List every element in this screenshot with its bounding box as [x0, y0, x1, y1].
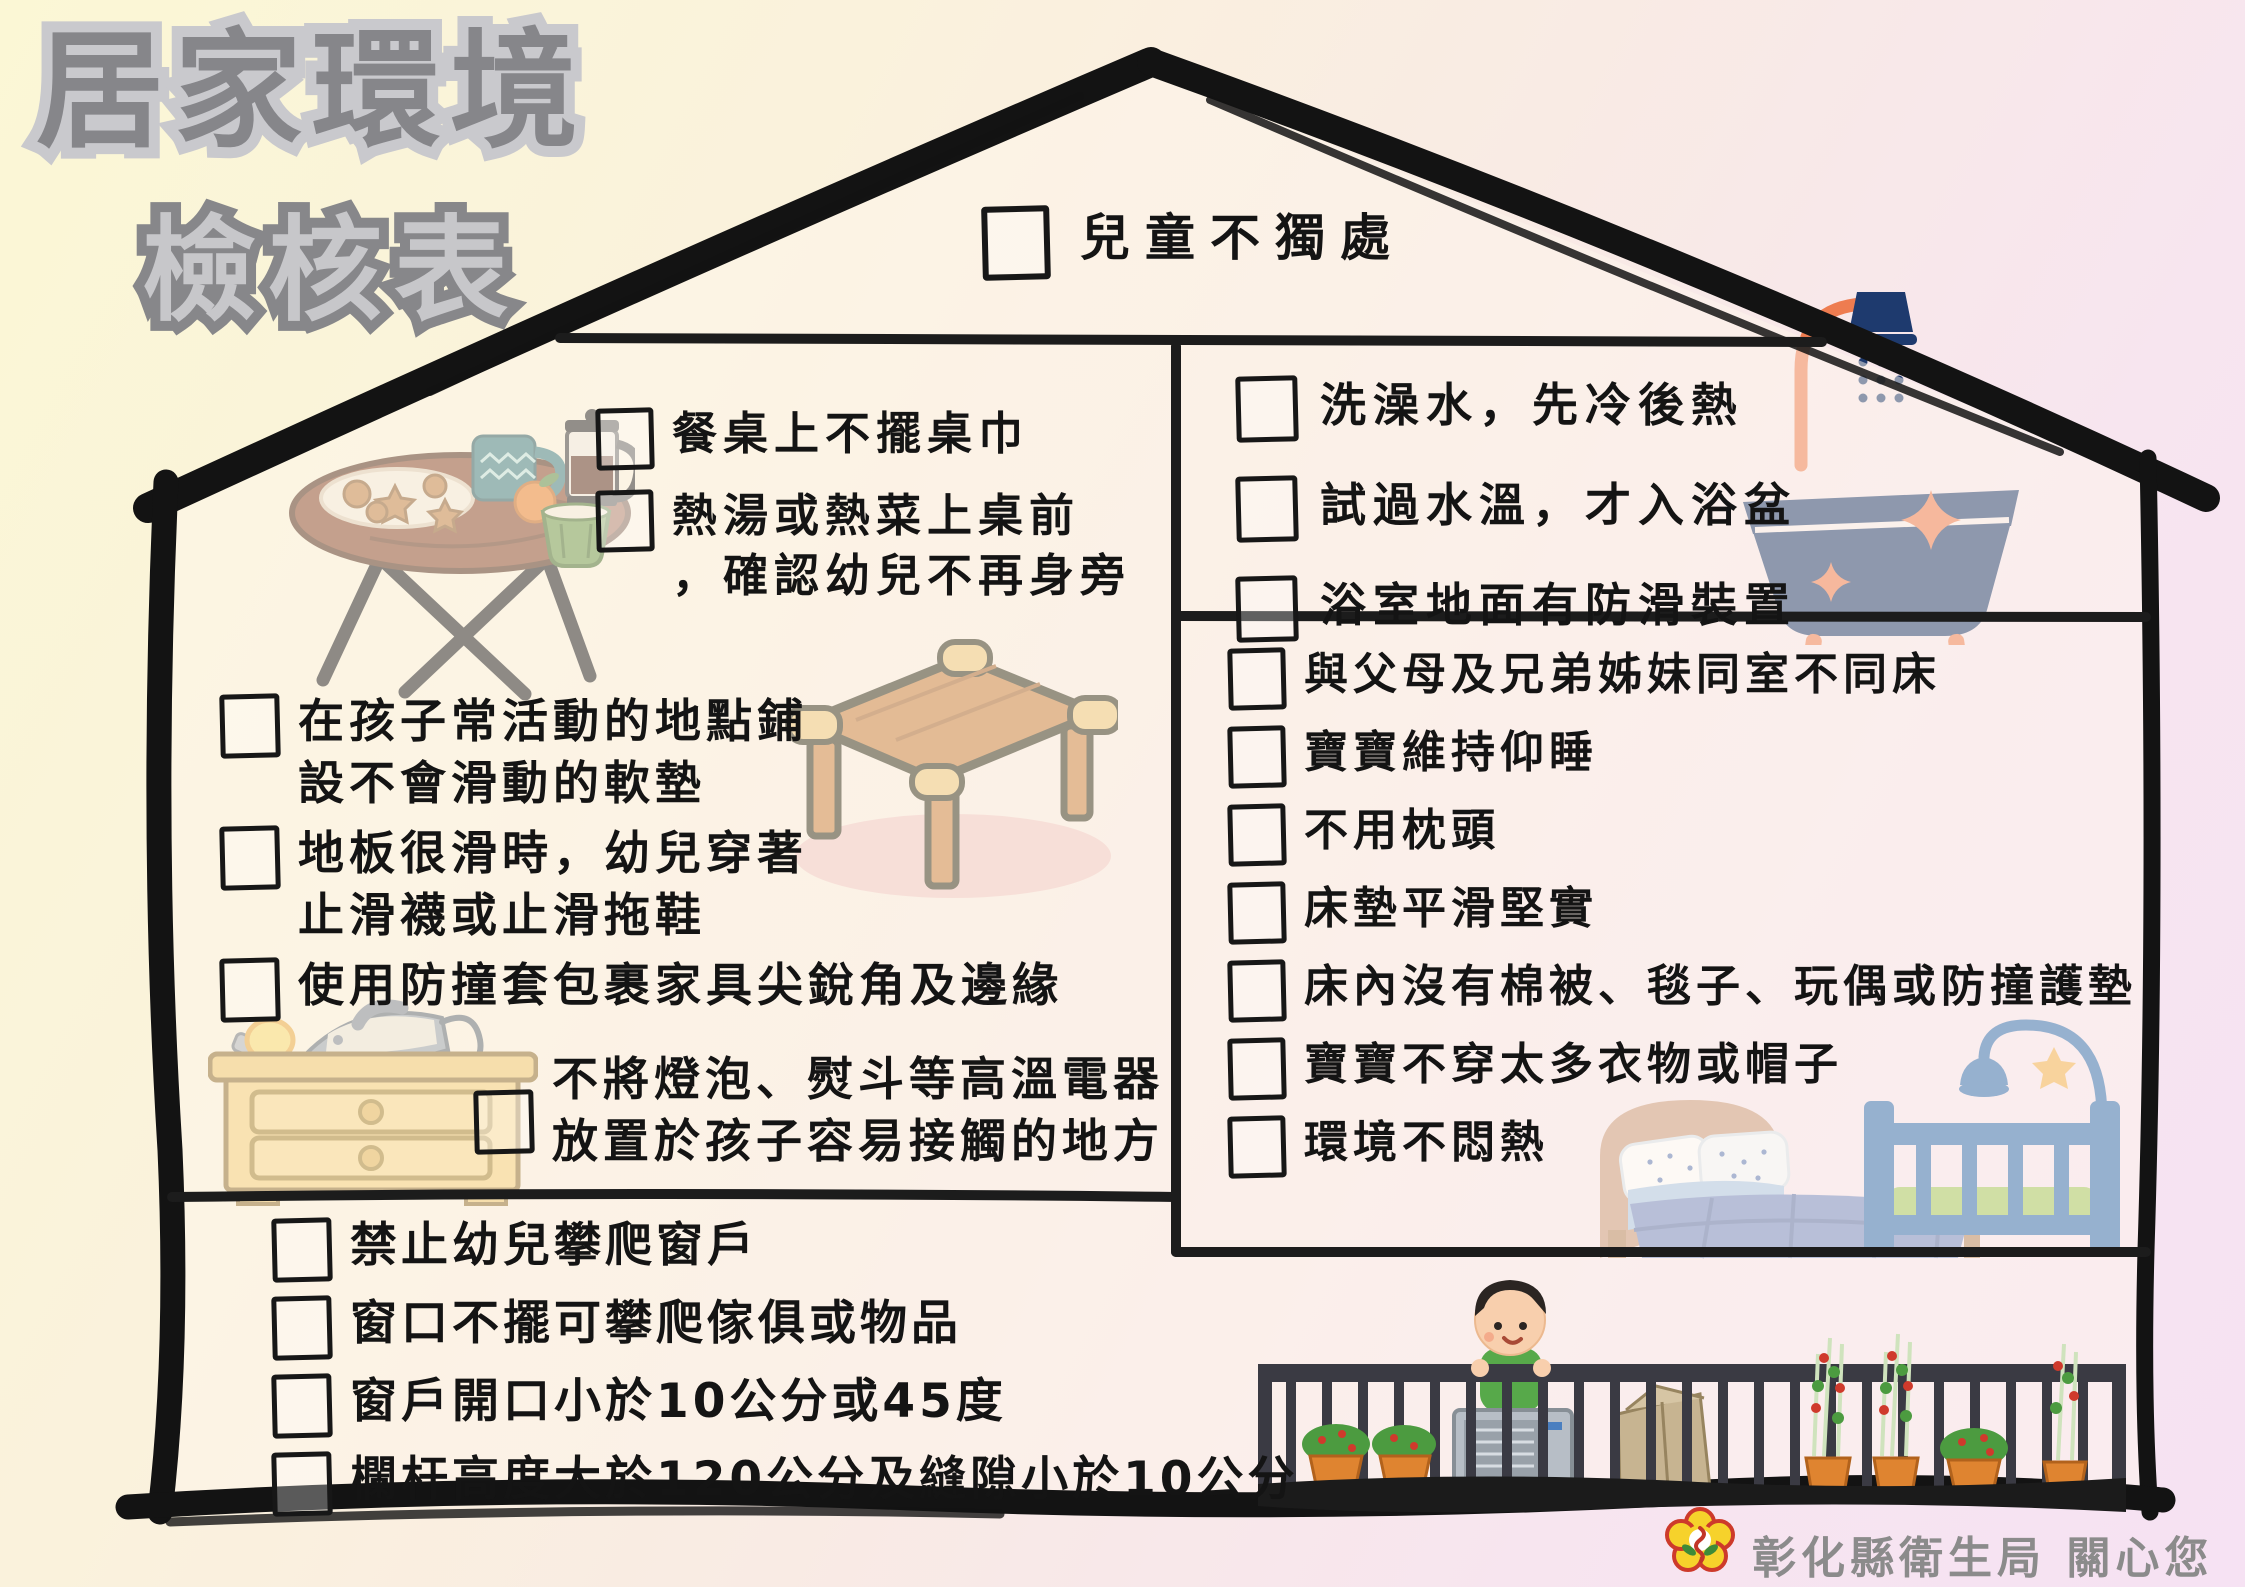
list-item: 欄杆高度大於120公分及縫隙小於10公分 [272, 1452, 1299, 1516]
checkbox-bed-7[interactable] [1227, 1115, 1286, 1178]
checkbox-balcony-3[interactable] [271, 1373, 333, 1438]
checkbox-living-1[interactable] [219, 693, 281, 758]
list-item: 試過水溫，才入浴盆 [1236, 476, 1797, 542]
checkbox-living-4[interactable] [473, 1089, 535, 1154]
item-label: 寶寶維持仰睡 [1304, 726, 1598, 780]
item-label: 洗澡水，先冷後熱 [1320, 376, 1744, 434]
item-label: 窗戶開口小於10公分或45度 [350, 1374, 1007, 1430]
checkbox-balcony-1[interactable] [271, 1217, 333, 1282]
rooftop-checklist: 兒童不獨處 [982, 206, 1405, 280]
checkbox-rooftop[interactable] [981, 205, 1051, 281]
tall-plant [1806, 1338, 1850, 1494]
health-bureau-logo [1662, 1506, 1738, 1576]
list-item: 寶寶不穿太多衣物或帽子 [1228, 1038, 2137, 1100]
bathroom-checklist: 洗澡水，先冷後熱 試過水溫，才入浴盆 浴室地面有防滑裝置 [1236, 376, 1797, 642]
list-item: 地板很滑時，幼兒穿著 止滑襪或止滑拖鞋 [220, 822, 1063, 946]
list-item: 不將燈泡、熨斗等高溫電器 放置於孩子容易接觸的地方 [474, 1048, 1164, 1172]
left-wall [159, 482, 173, 1512]
item-label: 地板很滑時，幼兒穿著 [298, 822, 808, 884]
item-label-line2: 放置於孩子容易接觸的地方 [552, 1110, 1164, 1172]
balcony-illustration [1258, 1268, 2138, 1518]
item-label: 不將燈泡、熨斗等高溫電器 [552, 1048, 1164, 1110]
item-label-line2: 設不會滑動的軟墊 [298, 752, 808, 814]
item-label: 熱湯或熱菜上桌前 [672, 486, 1131, 546]
item-label: 寶寶不穿太多衣物或帽子 [1304, 1038, 1843, 1092]
dining-checklist: 餐桌上不擺桌巾 熱湯或熱菜上桌前 ，確認幼兒不再身旁 [596, 404, 1131, 606]
item-label-line2: ，確認幼兒不再身旁 [672, 546, 1131, 606]
list-item: 浴室地面有防滑裝置 [1236, 576, 1797, 642]
checkbox-bed-3[interactable] [1227, 803, 1286, 866]
footer-credit: 彰化縣衛生局 關心您 [1752, 1522, 2213, 1586]
cardboard-boxes [1618, 1386, 1710, 1492]
checkbox-dining-1[interactable] [595, 407, 654, 470]
list-item: 熱湯或熱菜上桌前 ，確認幼兒不再身旁 [596, 486, 1131, 606]
item-label: 試過水溫，才入浴盆 [1320, 476, 1797, 534]
checkbox-living-2[interactable] [219, 825, 281, 890]
checkbox-bed-4[interactable] [1227, 881, 1286, 944]
item-label: 浴室地面有防滑裝置 [1320, 576, 1797, 634]
bedroom-checklist: 與父母及兄弟姊妹同室不同床 寶寶維持仰睡 不用枕頭 床墊平滑堅實 床內沒有棉被、… [1228, 648, 2137, 1178]
list-item: 床內沒有棉被、毯子、玩偶或防撞護墊 [1228, 960, 2137, 1022]
list-item: 餐桌上不擺桌巾 [596, 404, 1131, 470]
item-label: 環境不悶熱 [1304, 1116, 1549, 1170]
item-label: 床墊平滑堅實 [1304, 882, 1598, 936]
list-item: 環境不悶熱 [1228, 1116, 2137, 1178]
checkbox-bed-1[interactable] [1227, 647, 1286, 710]
item-label: 床內沒有棉被、毯子、玩偶或防撞護墊 [1304, 960, 2137, 1014]
partition-top [560, 338, 1822, 342]
page-title: 居家環境 居家環境 [36, 28, 588, 156]
item-label: 與父母及兄弟姊妹同室不同床 [1304, 648, 1941, 702]
checkbox-dining-2[interactable] [595, 489, 654, 552]
item-label: 窗口不擺可攀爬傢俱或物品 [350, 1296, 962, 1352]
checkbox-bed-6[interactable] [1227, 1037, 1286, 1100]
poster-canvas: 居家環境 居家環境 檢核表 檢核表 兒童不獨處 餐桌上不擺桌巾 熱湯或熱菜上桌前… [0, 0, 2245, 1587]
checkbox-bath-2[interactable] [1235, 475, 1299, 542]
living-checklist: 在孩子常活動的地點鋪 設不會滑動的軟墊 地板很滑時，幼兒穿著 止滑襪或止滑拖鞋 … [220, 690, 1063, 1022]
page-title-fill: 居家環境 [36, 17, 588, 166]
living-checklist-iron: 不將燈泡、熨斗等高溫電器 放置於孩子容易接觸的地方 [474, 1048, 1164, 1172]
list-item: 禁止幼兒攀爬窗戶 [272, 1218, 1299, 1282]
item-label: 在孩子常活動的地點鋪 [298, 690, 808, 752]
checkbox-bath-1[interactable] [1235, 375, 1299, 442]
item-label-line2: 止滑襪或止滑拖鞋 [298, 884, 808, 946]
list-item: 兒童不獨處 [982, 206, 1405, 280]
checkbox-balcony-4[interactable] [271, 1451, 333, 1516]
checkbox-bed-2[interactable] [1227, 725, 1286, 788]
checkbox-balcony-2[interactable] [271, 1295, 333, 1360]
checkbox-living-3[interactable] [219, 957, 281, 1022]
list-item: 寶寶維持仰睡 [1228, 726, 2137, 788]
list-item: 在孩子常活動的地點鋪 設不會滑動的軟墊 [220, 690, 1063, 814]
page-subtitle: 檢核表 檢核表 [142, 214, 520, 328]
list-item: 床墊平滑堅實 [1228, 882, 2137, 944]
list-item: 洗澡水，先冷後熱 [1236, 376, 1797, 442]
item-label: 使用防撞套包裹家具尖銳角及邊緣 [298, 954, 1063, 1016]
list-item: 不用枕頭 [1228, 804, 2137, 866]
checkbox-bath-3[interactable] [1235, 575, 1299, 642]
list-item: 窗戶開口小於10公分或45度 [272, 1374, 1299, 1438]
tall-plant [1874, 1334, 1918, 1494]
item-label: 欄杆高度大於120公分及縫隙小於10公分 [350, 1452, 1299, 1508]
item-label: 不用枕頭 [1304, 804, 1500, 858]
list-item: 使用防撞套包裹家具尖銳角及邊緣 [220, 954, 1063, 1022]
page-subtitle-fill: 檢核表 [142, 204, 520, 337]
item-label: 兒童不獨處 [1080, 206, 1405, 270]
checkbox-bed-5[interactable] [1227, 959, 1286, 1022]
partition-left-bottom [172, 1194, 1176, 1197]
item-label: 餐桌上不擺桌巾 [672, 404, 1029, 464]
list-item: 窗口不擺可攀爬傢俱或物品 [272, 1296, 1299, 1360]
item-label: 禁止幼兒攀爬窗戶 [350, 1218, 758, 1274]
balcony-checklist: 禁止幼兒攀爬窗戶 窗口不擺可攀爬傢俱或物品 窗戶開口小於10公分或45度 欄杆高… [272, 1218, 1299, 1516]
list-item: 與父母及兄弟姊妹同室不同床 [1228, 648, 2137, 710]
